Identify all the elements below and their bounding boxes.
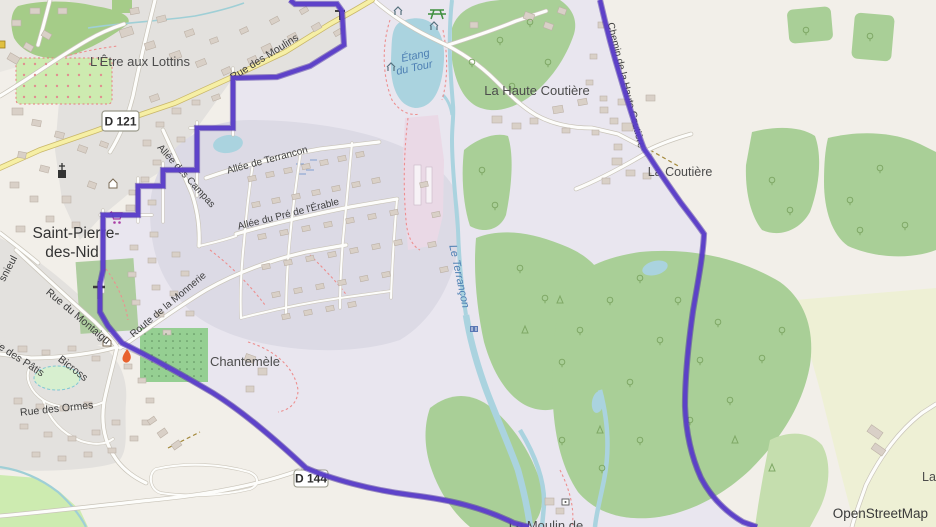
nursery-dot xyxy=(151,333,153,335)
nursery-dot xyxy=(144,361,146,363)
nursery-dot xyxy=(151,368,153,370)
building xyxy=(556,508,564,514)
nursery-dot xyxy=(200,361,202,363)
nursery-dot xyxy=(158,333,160,335)
building xyxy=(163,330,171,335)
orchard-dot xyxy=(78,63,80,65)
nursery-dot xyxy=(151,347,153,349)
orchard-dot xyxy=(78,85,80,87)
nursery-dot xyxy=(172,375,174,377)
orchard-dot xyxy=(56,85,58,87)
label-la-haute-coutiere: La Haute Coutière xyxy=(484,83,590,98)
orchard-dot xyxy=(45,63,47,65)
building xyxy=(18,151,27,158)
orchard-dot xyxy=(45,85,47,87)
orchard-dot xyxy=(56,96,58,98)
building xyxy=(186,311,194,316)
nursery-dot xyxy=(172,340,174,342)
building xyxy=(181,271,189,276)
nursery-dot xyxy=(165,340,167,342)
building xyxy=(126,205,135,211)
building xyxy=(12,108,23,115)
map-canvas[interactable]: L'Être aux Lottins Saint-Pierre- des-Nid… xyxy=(0,0,936,527)
building xyxy=(20,424,28,429)
nursery-dot xyxy=(200,340,202,342)
nursery-dot xyxy=(179,368,181,370)
building xyxy=(132,300,140,305)
building xyxy=(530,118,538,124)
nursery-dot xyxy=(165,333,167,335)
building xyxy=(10,182,19,188)
orchard-dot xyxy=(100,74,102,76)
building xyxy=(646,95,655,101)
nursery-dot xyxy=(165,347,167,349)
building xyxy=(130,436,138,441)
nursery-dot xyxy=(158,340,160,342)
building xyxy=(138,378,146,383)
building xyxy=(146,398,154,403)
building xyxy=(470,22,478,28)
building xyxy=(62,196,71,203)
building xyxy=(68,436,76,441)
nursery-dot xyxy=(193,333,195,335)
post-icon xyxy=(0,41,5,48)
nursery-dot xyxy=(193,375,195,377)
orchard-dot xyxy=(78,74,80,76)
nursery-dot xyxy=(158,347,160,349)
label-hamlet-lottins: L'Être aux Lottins xyxy=(90,54,191,69)
nursery-dot xyxy=(193,340,195,342)
label-chantemele: Chantemèle xyxy=(210,354,280,369)
building xyxy=(177,137,185,142)
nursery-dot xyxy=(179,333,181,335)
label-la-partial: La xyxy=(922,470,936,484)
building xyxy=(148,258,156,263)
orchard-dot xyxy=(89,74,91,76)
openstreetmap-attribution[interactable]: OpenStreetMap xyxy=(833,506,928,521)
building xyxy=(30,196,38,202)
building xyxy=(92,430,100,435)
building xyxy=(14,398,22,404)
nursery-dot xyxy=(158,368,160,370)
badge-d121: D 121 xyxy=(102,111,139,131)
orchard-dot xyxy=(34,74,36,76)
building xyxy=(246,386,254,392)
building xyxy=(152,285,160,290)
orchard-dot xyxy=(45,74,47,76)
building xyxy=(192,100,200,105)
building xyxy=(108,448,116,453)
nursery-dot xyxy=(144,340,146,342)
building xyxy=(128,272,136,277)
svg-text:D 121: D 121 xyxy=(104,115,136,129)
label-town-line1: Saint-Pierre- xyxy=(33,225,120,242)
nursery-dot xyxy=(186,361,188,363)
building xyxy=(58,456,66,461)
building xyxy=(148,200,156,205)
nursery-dot xyxy=(186,333,188,335)
nursery-dot xyxy=(186,354,188,356)
orchard-dot xyxy=(67,96,69,98)
building xyxy=(602,178,610,184)
building xyxy=(612,158,622,165)
building xyxy=(172,108,181,114)
nursery-dot xyxy=(186,340,188,342)
orchard-dot xyxy=(23,63,25,65)
building xyxy=(46,216,54,222)
nursery-dot xyxy=(186,347,188,349)
nursery-dot xyxy=(179,361,181,363)
building xyxy=(614,144,622,150)
orchard-dot xyxy=(23,85,25,87)
nursery-dot xyxy=(193,368,195,370)
nursery-dot xyxy=(186,368,188,370)
building xyxy=(258,368,267,375)
nursery-dot xyxy=(144,375,146,377)
nursery-dot xyxy=(200,368,202,370)
nursery-dot xyxy=(158,375,160,377)
building xyxy=(124,364,132,369)
orchard-dot xyxy=(67,63,69,65)
nursery-dot xyxy=(151,375,153,377)
building xyxy=(153,160,161,165)
orchard-dot xyxy=(23,96,25,98)
mill-icon xyxy=(562,499,569,505)
building xyxy=(150,232,158,237)
building xyxy=(30,8,40,14)
orchard-dot xyxy=(78,96,80,98)
building xyxy=(626,170,635,176)
orchard-dot xyxy=(56,63,58,65)
orchard-dot xyxy=(34,63,36,65)
building xyxy=(12,20,21,26)
nursery-dot xyxy=(172,333,174,335)
building xyxy=(130,7,140,14)
nursery-dot xyxy=(172,347,174,349)
building xyxy=(172,252,180,257)
nursery-dot xyxy=(200,354,202,356)
building xyxy=(610,118,618,124)
building xyxy=(600,96,607,101)
orchard-dot xyxy=(100,85,102,87)
nursery-dot xyxy=(193,361,195,363)
building xyxy=(130,245,138,250)
building xyxy=(92,356,100,361)
weir-icon xyxy=(470,326,478,332)
building xyxy=(156,122,164,127)
building xyxy=(590,54,597,59)
orchard-dot xyxy=(34,96,36,98)
orchard-dot xyxy=(67,85,69,87)
nursery-dot xyxy=(200,375,202,377)
building xyxy=(141,177,149,182)
nursery-dot xyxy=(179,347,181,349)
orchard-dot xyxy=(89,96,91,98)
building xyxy=(44,432,52,437)
nursery-dot xyxy=(144,368,146,370)
nursery-dot xyxy=(158,354,160,356)
building xyxy=(16,226,25,232)
map-svg: L'Être aux Lottins Saint-Pierre- des-Nid… xyxy=(0,0,936,527)
nursery-dot xyxy=(172,361,174,363)
building xyxy=(600,107,608,113)
orchard-dot xyxy=(67,74,69,76)
nursery-dot xyxy=(165,354,167,356)
building xyxy=(552,105,563,114)
building xyxy=(42,350,50,355)
orchard-dot xyxy=(100,96,102,98)
building xyxy=(143,140,151,146)
nursery-dot xyxy=(172,354,174,356)
label-town-line2: des-Nid xyxy=(45,244,98,261)
nursery-dot xyxy=(193,347,195,349)
building xyxy=(592,130,599,135)
building xyxy=(32,119,42,126)
building xyxy=(84,452,92,457)
building xyxy=(512,123,521,129)
nursery-dot xyxy=(144,347,146,349)
building xyxy=(68,346,76,351)
nursery-dot xyxy=(165,375,167,377)
nursery-dot xyxy=(179,354,181,356)
orchard-dot xyxy=(89,85,91,87)
nursery-dot xyxy=(179,340,181,342)
nursery-dot xyxy=(200,333,202,335)
orchard-dot xyxy=(23,74,25,76)
orchard-dot xyxy=(34,85,36,87)
orchard-dot xyxy=(56,74,58,76)
building xyxy=(112,420,120,425)
nursery-dot xyxy=(200,347,202,349)
building xyxy=(578,98,588,105)
building xyxy=(492,116,502,123)
orchard-dot xyxy=(45,96,47,98)
nursery-dot xyxy=(151,340,153,342)
building xyxy=(32,452,40,457)
nursery-dot xyxy=(193,354,195,356)
building xyxy=(58,8,67,14)
nursery-dot xyxy=(144,333,146,335)
building xyxy=(562,128,570,133)
building xyxy=(545,498,554,505)
